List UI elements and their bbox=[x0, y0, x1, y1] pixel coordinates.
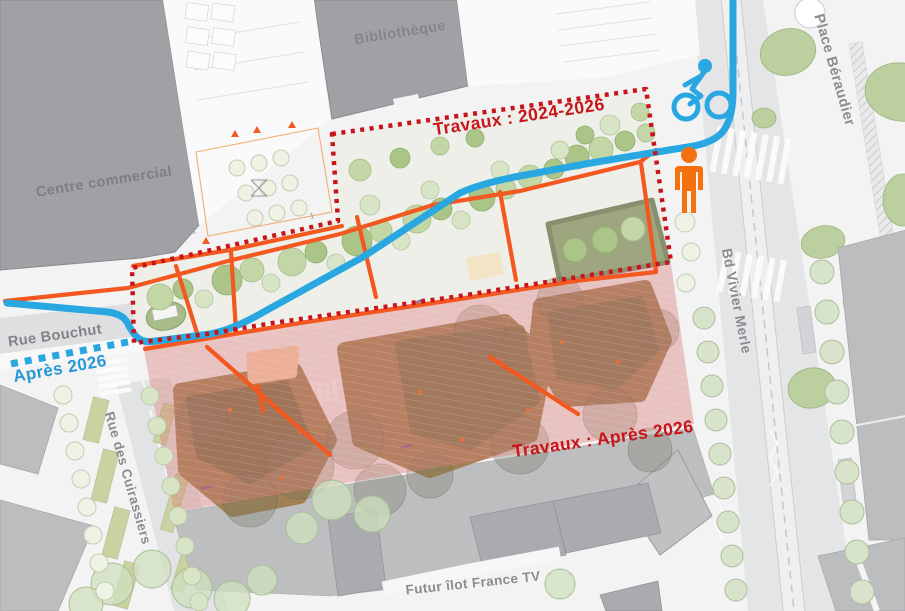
building-centre-commercial bbox=[0, 0, 199, 270]
works-map: Bibliothèque Centre commercial Place Bér… bbox=[0, 0, 905, 611]
